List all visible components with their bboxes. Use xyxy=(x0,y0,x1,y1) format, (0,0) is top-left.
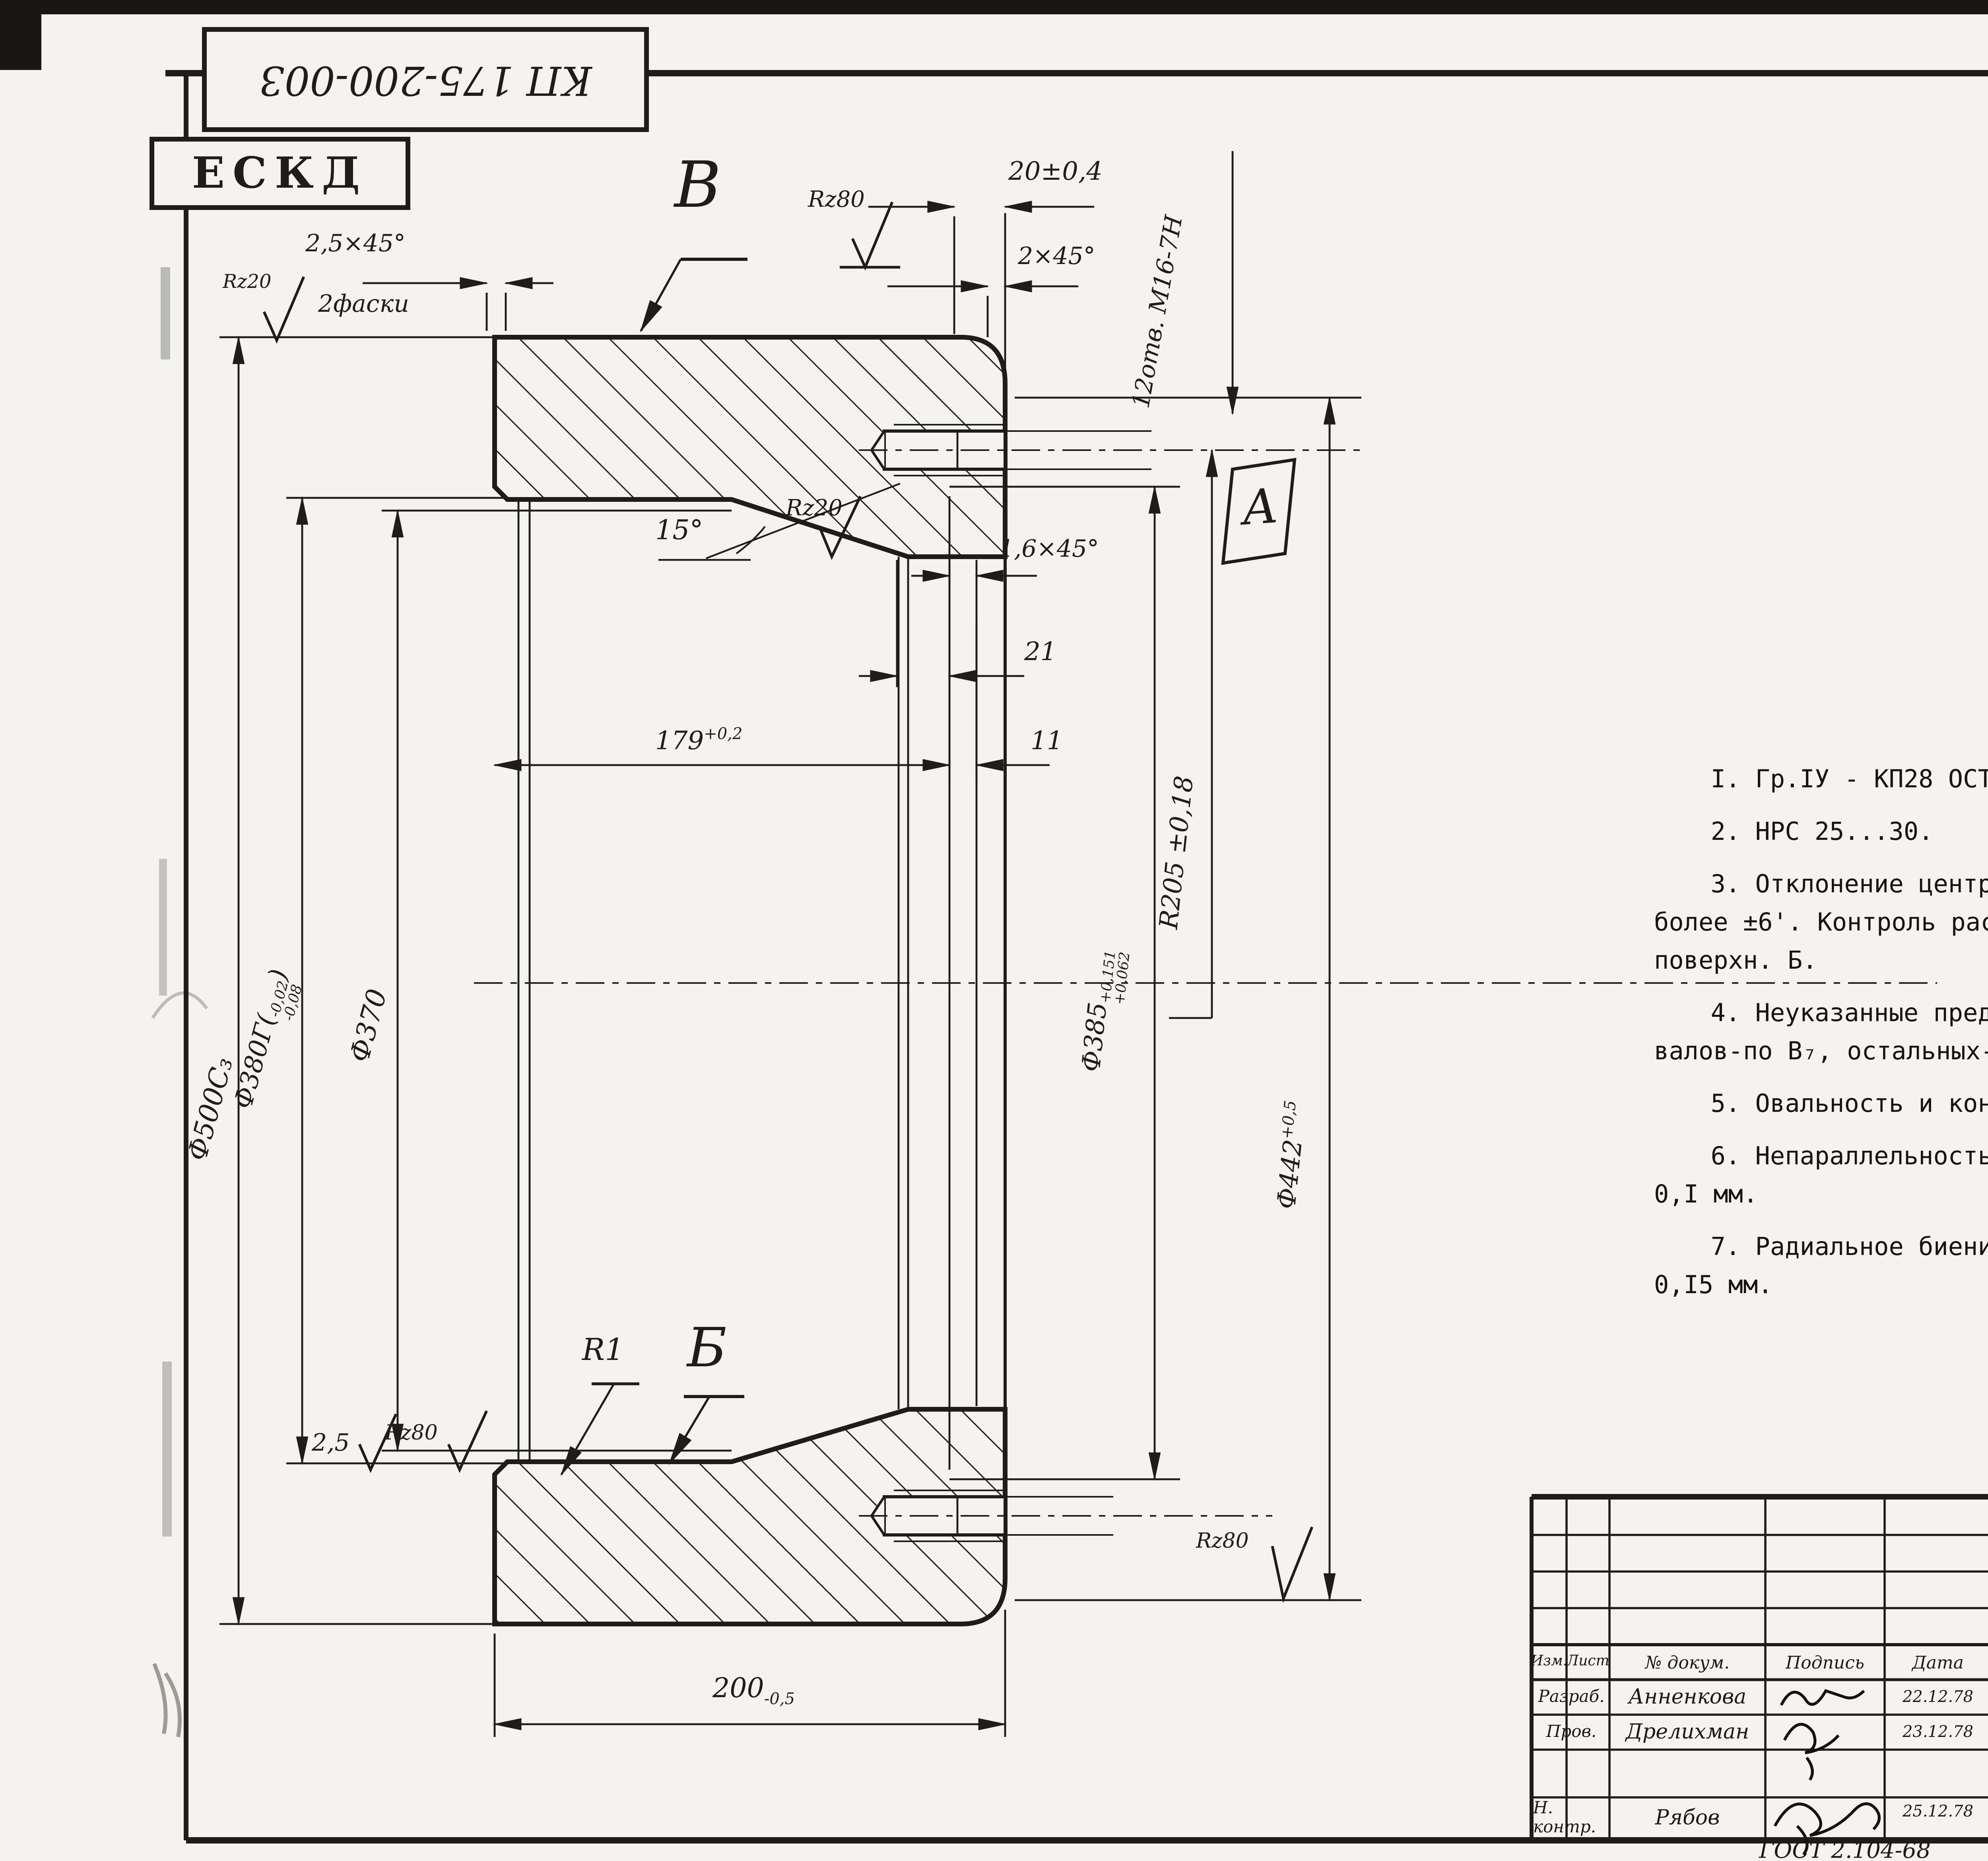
dim-21: 21 xyxy=(1024,636,1056,666)
note-line: I. Гр.IУ - КП28 ОСТ 5.9I25-73. xyxy=(1654,760,1988,798)
dim-d442-tol: +0,5 xyxy=(1279,1100,1301,1140)
titleblock-row-date: 25.12.78 xyxy=(1885,1797,1988,1826)
dim-200-tol: -0,5 xyxy=(764,1692,795,1709)
titleblock-row-role: Пров. xyxy=(1533,1718,1609,1746)
dim-20: 20±0,4 xyxy=(1008,156,1103,186)
titleblock-row-role: Н. контр. xyxy=(1533,1804,1609,1832)
dim-15deg: 15° xyxy=(655,515,703,547)
titleblock-row-date: 22.12.78 xyxy=(1885,1683,1988,1711)
titleblock-col-sign: Подпись xyxy=(1765,1648,1885,1676)
rz80-top-label: Rz80 xyxy=(808,188,865,213)
note-line: 4. Неуказанные предельные отклонения раз… xyxy=(1654,994,1988,1070)
view-label-a: А xyxy=(1240,479,1280,537)
technical-notes: I. Гр.IУ - КП28 ОСТ 5.9I25-73. 2. НРС 25… xyxy=(1654,760,1988,1319)
signature-annenkova xyxy=(1781,1691,1864,1705)
section-hatching xyxy=(495,337,1005,1624)
dim-2x45: 2×45° xyxy=(1018,242,1095,270)
dim-179-tol: +0,2 xyxy=(704,727,742,744)
note-line: 7. Радиальное биение поверхн. В относит.… xyxy=(1654,1228,1988,1305)
dim-200: 200-0,5 xyxy=(712,1673,795,1709)
dim-16x45: 1,6×45° xyxy=(999,534,1099,563)
titleblock-col-izm: Изм. xyxy=(1532,1648,1567,1676)
titleblock-row-name: Анненкова xyxy=(1609,1683,1765,1711)
signature-drelikhman xyxy=(1784,1724,1839,1780)
rz20-mid-label: Rz20 xyxy=(786,496,843,522)
dim-2faski: 2фаски xyxy=(318,289,409,318)
titleblock-col-list: Лист xyxy=(1567,1648,1609,1676)
dim-11: 11 xyxy=(1031,725,1063,756)
drawing-sheet: КП 175-200-003 ЕСКД Формат 2 Rz40 (√) В … xyxy=(0,0,1988,1861)
dim-200-value: 200 xyxy=(712,1673,764,1705)
note-line: 6. Непараллельность поверхн. В относит о… xyxy=(1654,1138,1988,1214)
titleblock-row-date: 23.12.78 xyxy=(1885,1718,1988,1746)
doc-number-stamp-text: КП 175-200-003 xyxy=(259,56,592,103)
eskd-stamp-text: ЕСКД xyxy=(192,149,368,198)
doc-number-stamp: КП 175-200-003 xyxy=(202,27,649,132)
view-label-v: В xyxy=(674,150,721,223)
titleblock-col-doc: № докум. xyxy=(1609,1648,1765,1676)
gost-reference: ГОСТ 2.104-68 xyxy=(1686,1840,1988,1861)
rz20-left-label: Rz20 xyxy=(223,270,272,293)
note-line: 3. Отклонение центрального угла между ос… xyxy=(1654,865,1988,980)
titleblock-row-name: Рябов xyxy=(1609,1804,1765,1832)
dim-179-value: 179 xyxy=(655,725,704,756)
dim-25-label: 2,5 xyxy=(312,1428,349,1457)
rz80-br-label: Rz80 xyxy=(1196,1530,1249,1554)
view-label-b: Б xyxy=(687,1317,727,1381)
titleblock-col-date: Дата xyxy=(1885,1648,1988,1676)
note-line: 5. Овальность и конусообр. поверхн. Б не… xyxy=(1654,1085,1988,1123)
titleblock-row-role: Разраб. xyxy=(1533,1683,1609,1711)
rz80-bl-label: Rz80 xyxy=(385,1422,438,1446)
dim-179: 179+0,2 xyxy=(655,725,742,756)
fillet-label-r1: R1 xyxy=(582,1333,624,1368)
titleblock-row-name: Дрелихман xyxy=(1609,1718,1765,1746)
note-line: 2. НРС 25...30. xyxy=(1654,813,1988,851)
dim-25x45: 2,5×45° xyxy=(305,229,406,258)
eskd-stamp: ЕСКД xyxy=(149,137,410,210)
